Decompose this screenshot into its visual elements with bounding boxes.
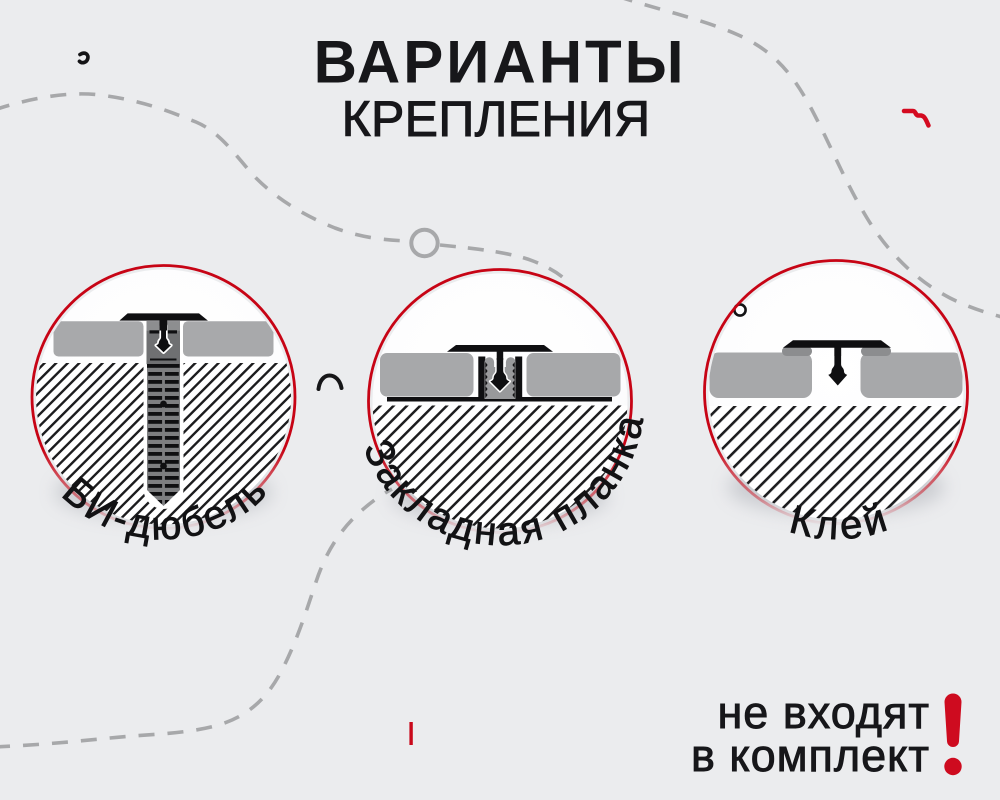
- svg-text:КРЕПЛЕНИЯ: КРЕПЛЕНИЯ: [342, 91, 651, 147]
- svg-text:ВАРИАНТЫ: ВАРИАНТЫ: [314, 29, 687, 96]
- svg-text:в комплект: в комплект: [691, 730, 930, 781]
